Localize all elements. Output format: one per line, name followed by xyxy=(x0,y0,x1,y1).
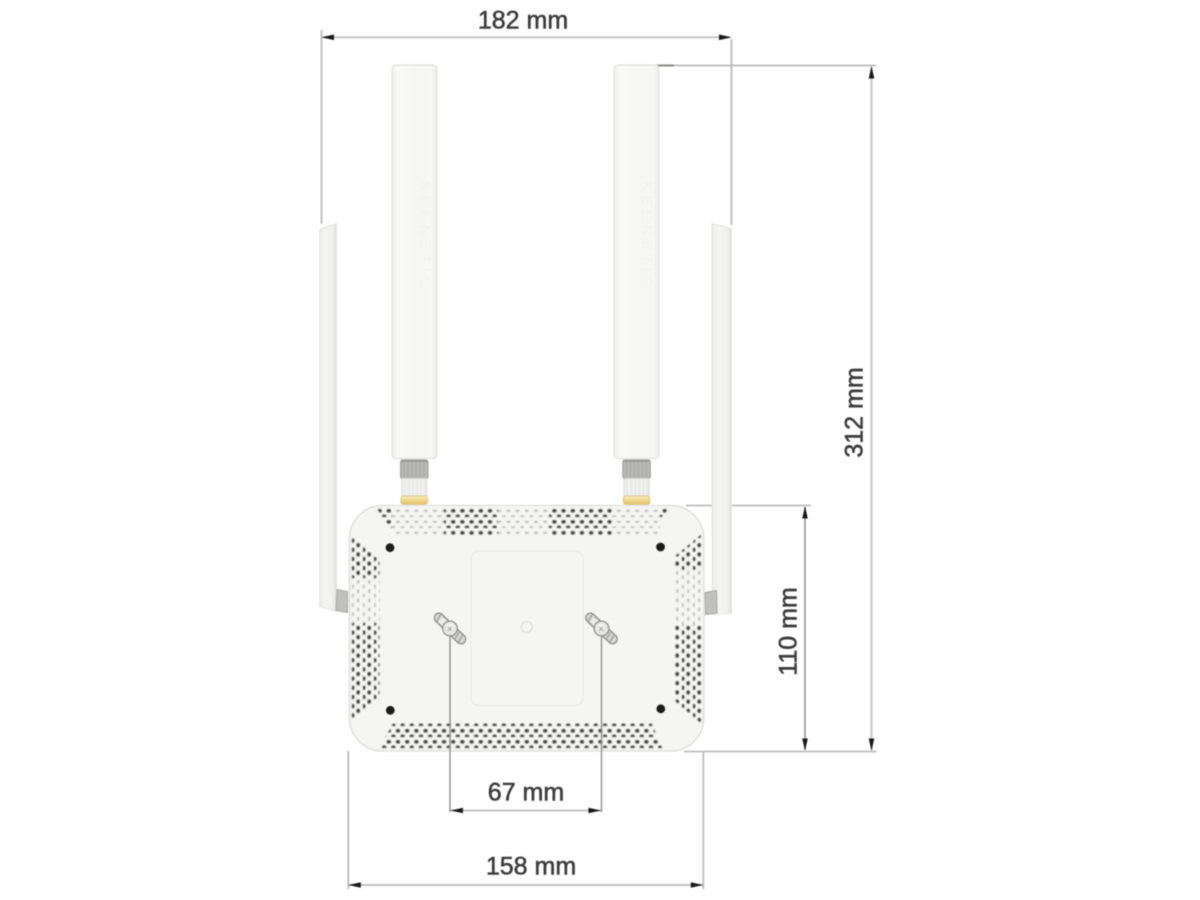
svg-text:KEENETIC: KEENETIC xyxy=(417,181,434,292)
svg-text:KEENETIC: KEENETIC xyxy=(639,181,656,292)
svg-text:312 mm: 312 mm xyxy=(841,367,869,457)
svg-text:158 mm: 158 mm xyxy=(486,853,576,881)
svg-text:182 mm: 182 mm xyxy=(478,7,568,35)
svg-text:110 mm: 110 mm xyxy=(775,587,803,675)
svg-text:67 mm: 67 mm xyxy=(488,779,564,807)
